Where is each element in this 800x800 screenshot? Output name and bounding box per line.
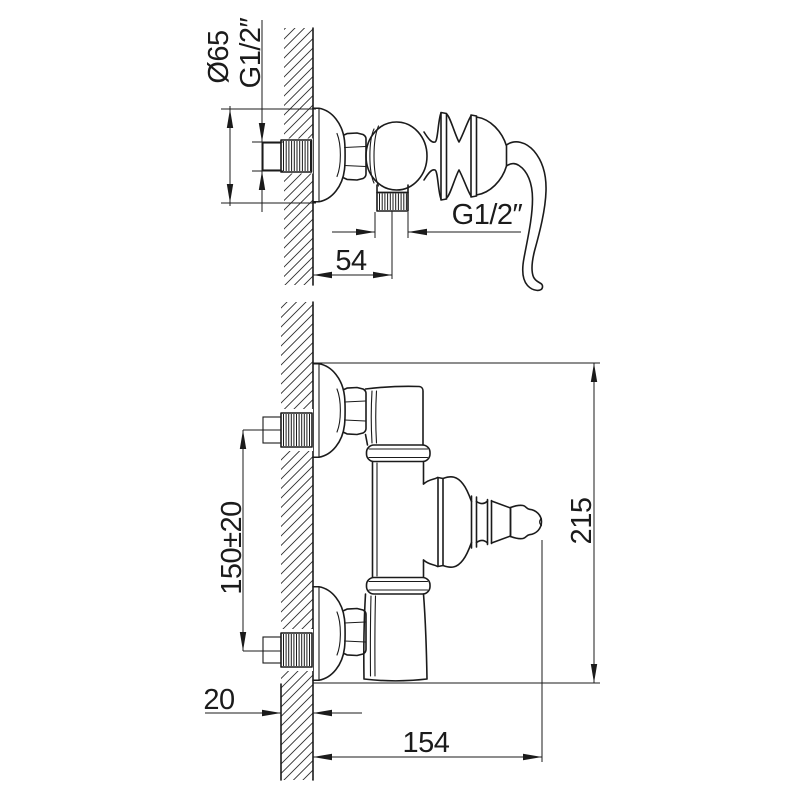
label-overall-height: 215: [566, 498, 598, 545]
front-view: 150±20 215 20 154: [203, 302, 600, 780]
upper-escutcheon: [313, 364, 345, 458]
escutcheon-flange: [313, 108, 345, 202]
dim-wall-to-handle: 154: [313, 540, 542, 762]
mixer-body: [364, 386, 430, 681]
label-wall-thickness: 20: [203, 684, 234, 716]
dim-inlet-spacing: 150±20: [216, 430, 281, 651]
dim-overall-height: 215: [313, 363, 600, 683]
wall-hatch: [281, 302, 313, 780]
lower-collar: [367, 578, 431, 595]
technical-drawing: Ø65 G1/2″ 54 G1/2″: [0, 0, 800, 800]
lower-escutcheon: [313, 587, 345, 681]
label-outlet-thread: G1/2″: [452, 199, 523, 231]
lever-handle-front: [424, 477, 542, 567]
dim-wall-thread: G1/2″: [235, 17, 283, 212]
side-view: Ø65 G1/2″ 54 G1/2″: [203, 17, 546, 290]
upper-hex-nut: [344, 388, 366, 435]
label-wall-to-handle: 154: [403, 727, 450, 759]
label-wall-to-outlet: 54: [335, 245, 367, 277]
label-wall-thread: G1/2″: [235, 17, 267, 88]
mixer-body-ball: [366, 122, 427, 190]
lower-inlet-nipple: [257, 629, 313, 671]
dim-outlet-thread: G1/2″: [332, 199, 523, 238]
label-inlet-spacing: 150±20: [216, 501, 248, 595]
upper-collar: [367, 445, 431, 462]
dim-wall-to-outlet: 54: [313, 211, 392, 279]
drawing-canvas: Ø65 G1/2″ 54 G1/2″: [0, 0, 800, 800]
wall-section-bottom: [281, 302, 313, 780]
cartridge-spindle: [424, 113, 507, 201]
hex-nut: [344, 133, 366, 180]
inlet-nipple: [257, 139, 313, 174]
label-escutcheon-diameter: Ø65: [203, 30, 235, 83]
lower-hex-nut: [344, 609, 366, 656]
